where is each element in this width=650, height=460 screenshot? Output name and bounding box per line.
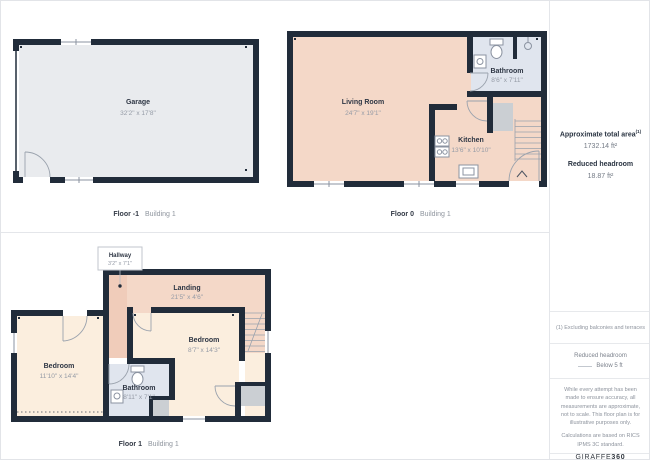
window bbox=[456, 181, 479, 187]
room-dims-bathroom0: 8'6" x 7'11" bbox=[491, 77, 523, 84]
window bbox=[265, 331, 271, 353]
disclaimer-text-2: Calculations are based on RICS IPMS 3C s… bbox=[557, 432, 644, 449]
room-label-bedroom-right: Bedroom bbox=[189, 337, 220, 344]
building-caption-0: Building 1 bbox=[420, 211, 451, 218]
room-label-bathroom0: Bathroom bbox=[490, 68, 523, 75]
floorplan-viewer: Garage 32'2" x 17'8" Floor -1 Building 1 bbox=[0, 0, 650, 460]
legend-title: Reduced headroom bbox=[574, 353, 627, 359]
room-label-kitchen: Kitchen bbox=[458, 137, 484, 144]
reduced-headroom-area bbox=[153, 400, 169, 416]
reduced-headroom-label: Reduced headroom bbox=[550, 160, 650, 169]
toilet-icon bbox=[490, 39, 503, 59]
logo-prefix: GIRAFFE bbox=[575, 454, 611, 460]
room-label-bedroom-left: Bedroom bbox=[44, 363, 75, 370]
window bbox=[183, 416, 205, 422]
kitchen-sink-icon bbox=[459, 165, 478, 178]
stove-icon bbox=[435, 136, 449, 157]
room-label-hallway: Hallway bbox=[109, 253, 132, 259]
legend: Reduced headroom Below 5 ft bbox=[550, 343, 650, 378]
building-caption-minus1: Building 1 bbox=[145, 211, 176, 218]
floorplan-floor1: Hallway 3'2" x 7'1" Landing 21'5" x 4'6"… bbox=[11, 247, 271, 448]
footnote: (1) Excluding balconies and terraces bbox=[550, 311, 650, 343]
area-summary: Approximate total area(1) 1732.14 ft² Re… bbox=[550, 1, 650, 311]
floorplan-floor0: Living Room 24'7" x 19'1" Kitchen 13'6" … bbox=[287, 31, 547, 218]
reduced-headroom-area bbox=[493, 103, 513, 131]
floor-caption-minus1: Floor -1 bbox=[113, 211, 139, 218]
room-dims-bedroom-left: 11'10" x 14'4" bbox=[40, 373, 79, 380]
room-dims-kitchen: 13'6" x 10'10" bbox=[451, 147, 491, 154]
room-dims-living: 24'7" x 19'1" bbox=[345, 110, 381, 117]
building-caption-1: Building 1 bbox=[148, 441, 179, 448]
room-dims-bedroom-right: 8'7" x 14'3" bbox=[188, 347, 221, 354]
window bbox=[61, 39, 91, 45]
total-area-label-text: Approximate total area bbox=[560, 131, 636, 138]
room-label-living: Living Room bbox=[342, 99, 384, 106]
disclaimer: While every attempt has been made to ens… bbox=[550, 378, 650, 453]
room-dims-bathroom1: 8'11" x 7'1" bbox=[123, 394, 155, 401]
sink-icon bbox=[474, 55, 486, 68]
room-dims-landing: 21'5" x 4'6" bbox=[171, 294, 204, 301]
total-area-label: Approximate total area(1) bbox=[550, 127, 650, 139]
window bbox=[65, 177, 93, 183]
logo-suffix: 360 bbox=[611, 454, 625, 460]
sink-icon bbox=[111, 390, 123, 403]
window bbox=[404, 181, 434, 187]
window bbox=[314, 181, 344, 187]
total-area-footnote-marker: (1) bbox=[636, 129, 642, 134]
room-label-landing: Landing bbox=[173, 285, 200, 292]
reduced-headroom-value: 18.87 ft² bbox=[550, 172, 650, 181]
hallway-room bbox=[109, 275, 127, 358]
disclaimer-text-1: While every attempt has been made to ens… bbox=[557, 386, 644, 427]
toilet-icon bbox=[131, 366, 144, 386]
dashed-line-icon bbox=[578, 366, 592, 367]
floor-caption-0: Floor 0 bbox=[391, 211, 414, 218]
room-label-bathroom1: Bathroom bbox=[122, 385, 155, 392]
floorplan-floor-minus1: Garage 32'2" x 17'8" Floor -1 Building 1 bbox=[13, 39, 259, 218]
floor-caption-1: Floor 1 bbox=[119, 441, 142, 448]
legend-item-label: Below 5 ft bbox=[596, 363, 622, 369]
total-area-value: 1732.14 ft² bbox=[550, 142, 650, 151]
window bbox=[11, 333, 17, 353]
room-label-garage: Garage bbox=[126, 99, 150, 106]
summary-sidebar: Approximate total area(1) 1732.14 ft² Re… bbox=[549, 1, 650, 460]
room-dims-hallway: 3'2" x 7'1" bbox=[108, 261, 132, 267]
garage-door-opening bbox=[13, 51, 19, 171]
reduced-headroom-area bbox=[241, 386, 265, 406]
legend-item: Below 5 ft bbox=[578, 363, 622, 369]
room-dims-garage: 32'2" x 17'8" bbox=[120, 110, 156, 117]
